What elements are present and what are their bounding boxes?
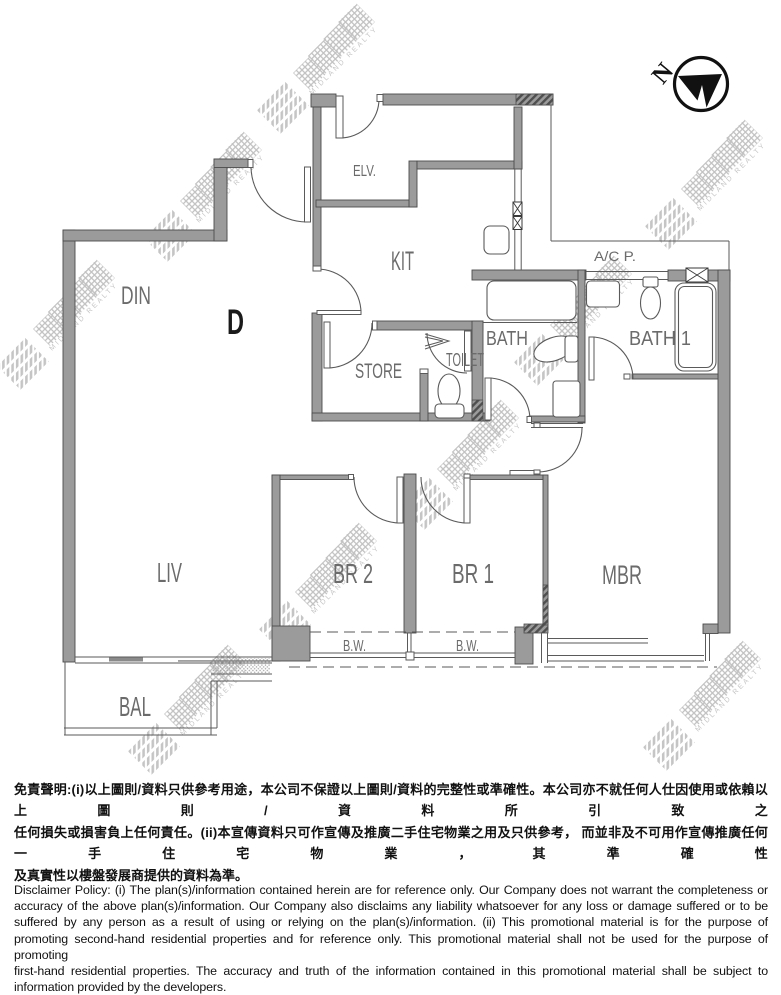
svg-text:STORE: STORE: [355, 360, 402, 383]
svg-text:B.W.: B.W.: [456, 638, 479, 655]
svg-text:KIT: KIT: [391, 246, 414, 276]
svg-text:ELV.: ELV.: [353, 163, 376, 180]
svg-text:DIN: DIN: [121, 282, 151, 310]
svg-text:LIV: LIV: [157, 557, 182, 588]
svg-text:B.W.: B.W.: [343, 638, 366, 655]
svg-text:BAL: BAL: [119, 691, 151, 722]
svg-text:BR 1: BR 1: [452, 558, 494, 589]
svg-text:MBR: MBR: [602, 560, 642, 590]
svg-text:BR 2: BR 2: [333, 558, 373, 589]
svg-text:BATH: BATH: [486, 328, 528, 350]
svg-text:D: D: [227, 303, 244, 342]
svg-text:A/C P.: A/C P.: [594, 248, 636, 264]
svg-text:BATH 1: BATH 1: [629, 328, 691, 350]
svg-text:TOILET: TOILET: [446, 350, 484, 370]
